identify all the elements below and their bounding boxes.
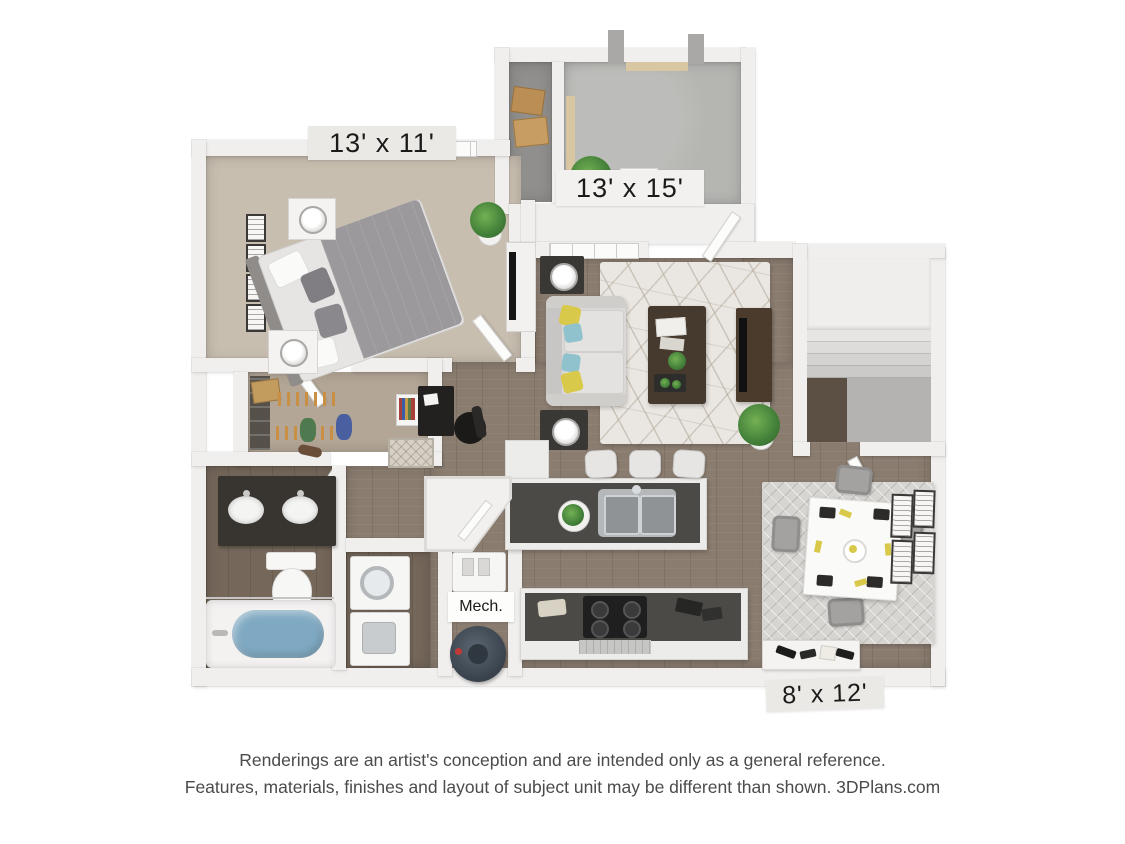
sofa bbox=[546, 296, 626, 406]
dining-chair bbox=[835, 464, 874, 496]
disclaimer-line-1: Renderings are an artist's conception an… bbox=[0, 750, 1125, 771]
napkin-yellow bbox=[839, 508, 852, 518]
sink-basin bbox=[640, 495, 676, 535]
water-heater-cap bbox=[468, 644, 488, 664]
stair-step bbox=[807, 342, 931, 354]
bedroom-wall-art bbox=[246, 214, 266, 242]
placemat bbox=[873, 508, 890, 520]
bedroom-plant bbox=[470, 202, 506, 238]
stair-step bbox=[807, 354, 931, 366]
dimension-tab-living: 13' x 15' bbox=[556, 170, 704, 206]
nightstand-lamp bbox=[280, 339, 308, 367]
coffee-table-magazine bbox=[659, 337, 684, 351]
bathroom-sink bbox=[228, 496, 264, 524]
dining-wall-art bbox=[890, 540, 914, 585]
storage-box bbox=[513, 116, 550, 147]
sink-faucet bbox=[297, 490, 304, 497]
burner bbox=[591, 601, 609, 619]
cooktop bbox=[583, 596, 647, 638]
kitchen-sink bbox=[598, 489, 676, 537]
bathtub-faucet bbox=[212, 630, 228, 636]
desk-paper bbox=[423, 393, 438, 406]
wall-stair-top bbox=[795, 244, 945, 258]
stair-step bbox=[807, 366, 931, 378]
wall-entry-left bbox=[495, 48, 509, 214]
island-plant bbox=[562, 504, 584, 526]
wall-stair-bottom-a bbox=[793, 442, 810, 456]
end-table-lamp bbox=[552, 418, 580, 446]
coffee-table-book bbox=[655, 317, 686, 337]
stair-lower-floor bbox=[847, 378, 931, 442]
kitchen-faucet bbox=[632, 485, 641, 494]
end-table-lamp bbox=[550, 263, 578, 291]
wall-bedroom-bottom-c bbox=[516, 358, 535, 372]
shower-curtain-rod bbox=[206, 597, 334, 599]
dimension-tab-patio: 8' x 12' bbox=[765, 676, 884, 712]
dimension-tab-bedroom: 13' x 11' bbox=[308, 126, 456, 160]
wall-stair-bottom-b bbox=[860, 442, 945, 456]
oven-handle bbox=[579, 640, 651, 654]
water-heater-valve bbox=[455, 648, 462, 655]
wall-exterior-left bbox=[192, 140, 206, 686]
stair-step bbox=[807, 330, 931, 342]
living-plant bbox=[738, 404, 780, 446]
coffee-table-tray bbox=[654, 374, 686, 392]
storage-box bbox=[510, 86, 545, 116]
sink-basin bbox=[604, 495, 640, 535]
closet-storage-box bbox=[251, 378, 282, 404]
dryer-door bbox=[362, 622, 396, 654]
stair-landing bbox=[807, 258, 931, 330]
throw-pillow-teal bbox=[563, 323, 584, 344]
living-tv bbox=[739, 318, 747, 392]
napkin-yellow bbox=[854, 578, 867, 587]
burner bbox=[623, 601, 641, 619]
sofa-arm bbox=[546, 394, 626, 406]
bedroom-tv bbox=[509, 252, 516, 320]
burner bbox=[591, 620, 609, 638]
nightstand-lamp bbox=[299, 206, 327, 234]
tray-plant bbox=[660, 378, 670, 388]
wall-stair-left bbox=[793, 244, 807, 456]
furnace-panel bbox=[478, 558, 490, 576]
bathroom-sink bbox=[282, 496, 318, 524]
patio-dimensions-text: 8' x 12' bbox=[782, 678, 869, 710]
wall-living-top-right bbox=[712, 242, 795, 258]
mech-room-label-text: Mech. bbox=[459, 598, 503, 616]
furnace-panel bbox=[462, 558, 474, 576]
bedroom-dimensions-text: 13' x 11' bbox=[329, 128, 435, 159]
closet-hanger-row bbox=[278, 392, 336, 406]
bar-stool bbox=[672, 449, 706, 479]
placemat bbox=[819, 507, 836, 519]
coffee-table-plant bbox=[668, 352, 686, 370]
bar-stool bbox=[629, 450, 661, 478]
wall-laundry-top bbox=[346, 538, 430, 552]
wall-post-left bbox=[608, 30, 624, 64]
sofa-arm bbox=[546, 296, 626, 308]
dining-table bbox=[803, 497, 904, 601]
burner bbox=[623, 620, 641, 638]
wall-accent-beige-top bbox=[626, 62, 688, 71]
wall-post-right bbox=[688, 34, 704, 64]
floor-plan-image: Mech. bbox=[0, 0, 1125, 844]
tray-plant bbox=[672, 380, 681, 389]
closet-garment-blue bbox=[336, 414, 352, 440]
stair-lower-floor-wood bbox=[807, 378, 847, 442]
cutting-board bbox=[537, 599, 567, 618]
placemat bbox=[866, 576, 883, 588]
living-dimensions-text: 13' x 15' bbox=[576, 173, 684, 204]
sideboard-board bbox=[819, 645, 837, 661]
washer-door bbox=[360, 566, 394, 600]
dining-wall-art bbox=[912, 532, 935, 575]
dining-wall-art bbox=[890, 494, 914, 539]
mech-room-label: Mech. bbox=[448, 592, 514, 622]
closet-garment-green bbox=[300, 418, 316, 442]
placemat bbox=[816, 575, 833, 587]
bookshelf-books bbox=[399, 398, 415, 420]
dining-wall-art bbox=[912, 490, 935, 529]
bathtub-water bbox=[232, 610, 324, 658]
dining-chair bbox=[771, 515, 801, 552]
sink-faucet bbox=[243, 490, 250, 497]
dining-chair bbox=[827, 597, 865, 627]
napkin-yellow bbox=[814, 540, 822, 553]
hall-bench bbox=[388, 438, 434, 468]
bar-stool bbox=[584, 449, 617, 479]
disclaimer-line-2: Features, materials, finishes and layout… bbox=[0, 777, 1125, 798]
